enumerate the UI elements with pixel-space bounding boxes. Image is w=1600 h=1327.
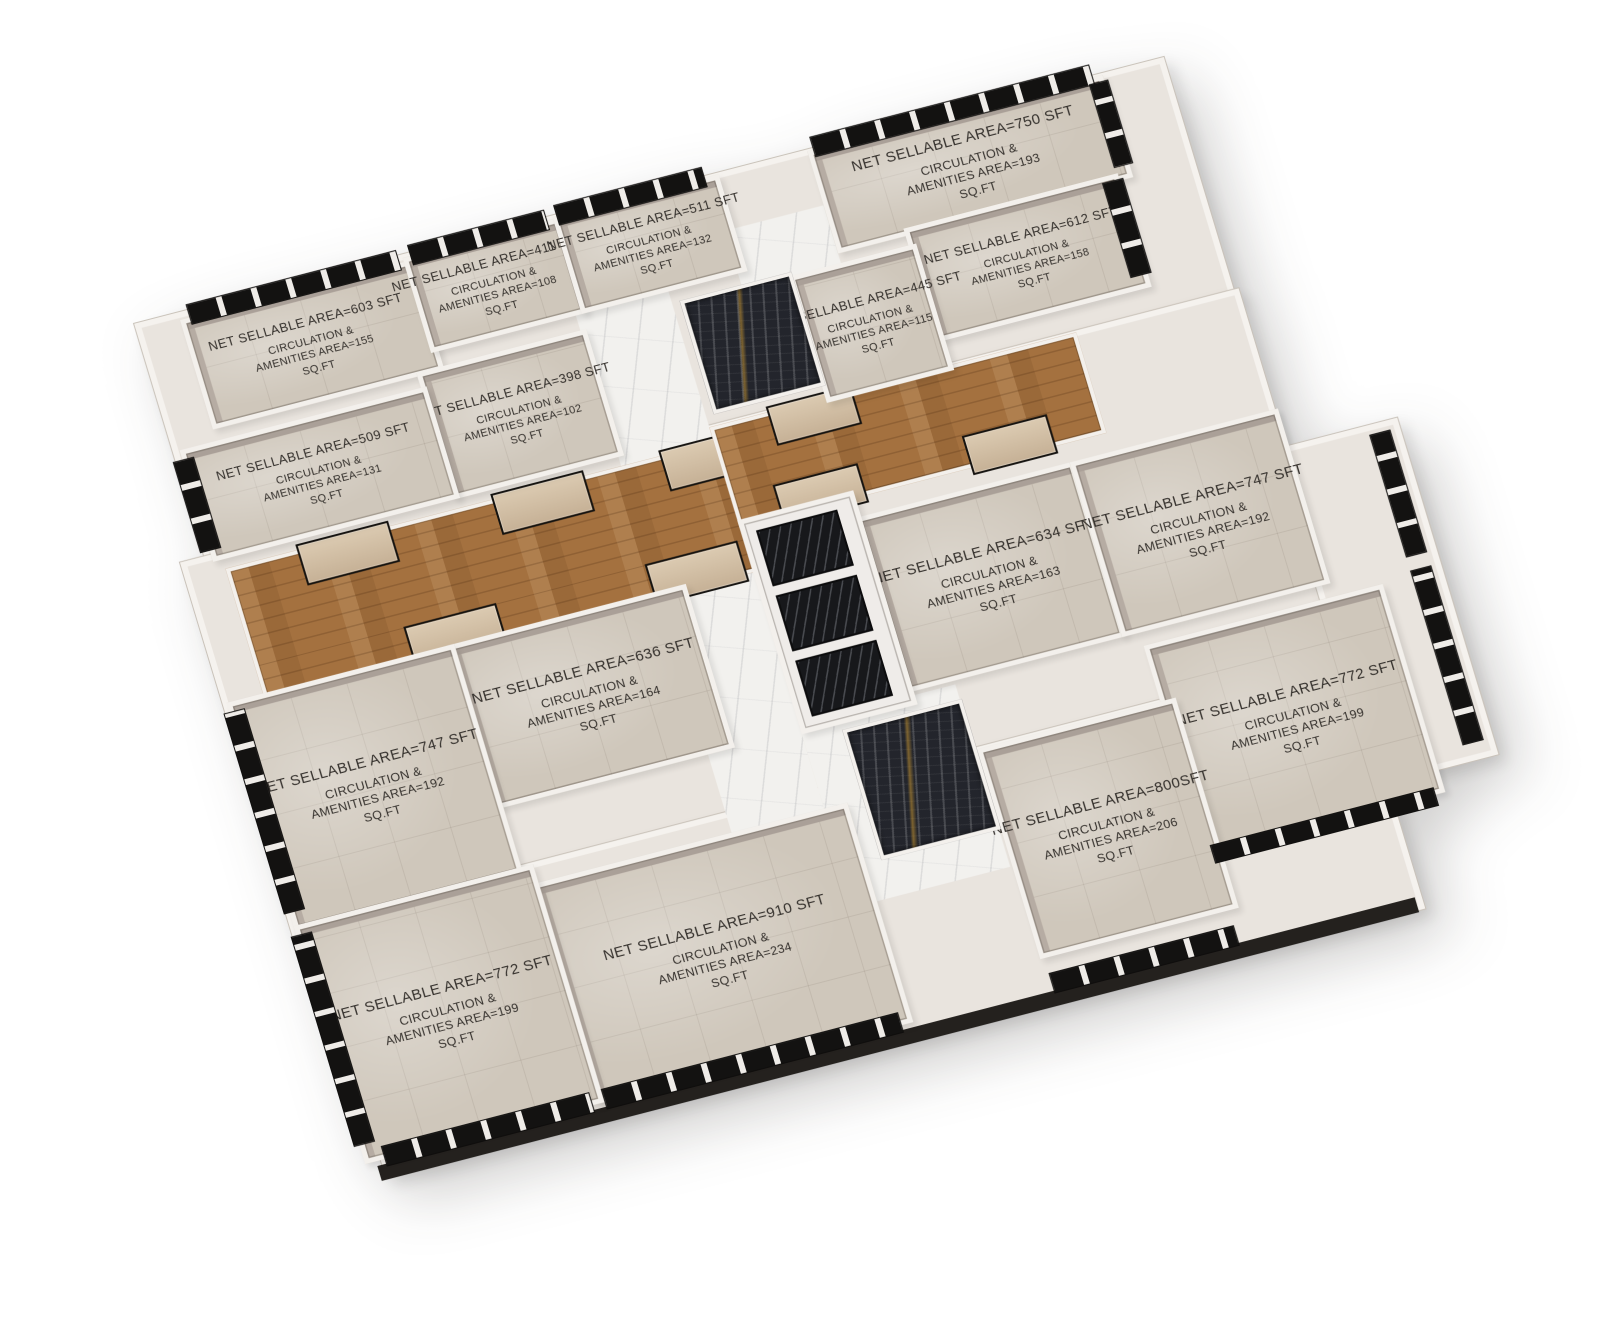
unit-net-area-label: NET SELLABLE AREA=772 SFT [328,952,554,1025]
unit-amenities-label: CIRCULATION & AMENITIES AREA=199 SQ.FT [1224,690,1371,770]
unit-amenities-label: CIRCULATION & AMENITIES AREA=192 SQ.FT [1130,494,1277,574]
unit-amenities-label: CIRCULATION & AMENITIES AREA=132 SQ.FT [588,219,718,289]
unit-amenities-label: CIRCULATION & AMENITIES AREA=234 SQ.FT [652,924,799,1004]
unit-amenities-label: CIRCULATION & AMENITIES AREA=206 SQ.FT [1038,799,1185,879]
unit-net-area-label: NET SELLABLE AREA=772 SFT [1174,657,1400,730]
unit-net-area-label: NET SELLABLE AREA=398 SFT [415,359,612,423]
unit-net-area-label: NET SELLABLE AREA=800SFT [989,767,1211,839]
unit-amenities-label: CIRCULATION & AMENITIES AREA=164 SQ.FT [521,668,668,748]
unit-amenities-label: CIRCULATION & AMENITIES AREA=192 SQ.FT [305,759,452,839]
unit-amenities-label: CIRCULATION & AMENITIES AREA=199 SQ.FT [379,985,526,1065]
canvas: NET SELLABLE AREA=603 SFT CIRCULATION & … [0,0,1600,1327]
unit-net-area-label: NET SELLABLE AREA=747 SFT [254,726,480,799]
elevator-shaft [776,575,874,652]
unit-amenities-label: CIRCULATION & AMENITIES AREA=108 SQ.FT [433,260,563,330]
elevator-shaft [795,640,893,717]
unit-net-area-label: NET SELLABLE AREA=634 SFT [870,515,1096,588]
unit-net-area-label: NET SELLABLE AREA=910 SFT [601,891,827,964]
unit-amenities-label: CIRCULATION & AMENITIES AREA=115 SQ.FT [810,298,939,368]
unit-net-area-label: NET SELLABLE AREA=747 SFT [1079,461,1305,534]
building-floor-plan: NET SELLABLE AREA=603 SFT CIRCULATION & … [110,30,1531,1204]
unit-net-area-label: NET SELLABLE AREA=636 SFT [470,635,696,708]
unit-amenities-label: CIRCULATION & AMENITIES AREA=131 SQ.FT [258,449,388,519]
unit-amenities-label: CIRCULATION & AMENITIES AREA=155 SQ.FT [250,319,380,389]
unit-amenities-label: CIRCULATION & AMENITIES AREA=102 SQ.FT [458,389,588,459]
unit-amenities-label: CIRCULATION & AMENITIES AREA=158 SQ.FT [966,232,1096,302]
elevator-shaft [756,510,854,587]
unit-amenities-label: CIRCULATION & AMENITIES AREA=163 SQ.FT [921,548,1068,628]
